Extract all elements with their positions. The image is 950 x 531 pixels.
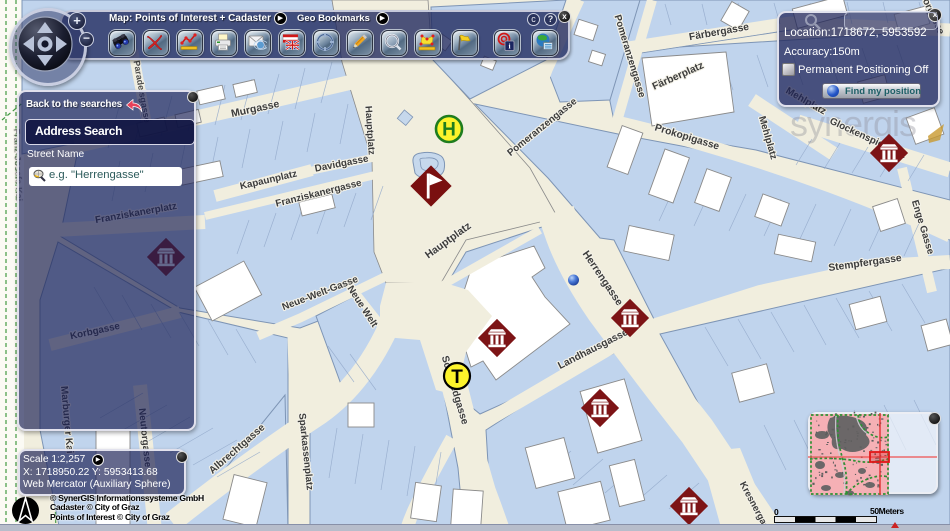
svg-text:i: i [508,42,510,51]
svg-text:H: H [442,120,456,141]
svg-text:T: T [451,367,463,388]
